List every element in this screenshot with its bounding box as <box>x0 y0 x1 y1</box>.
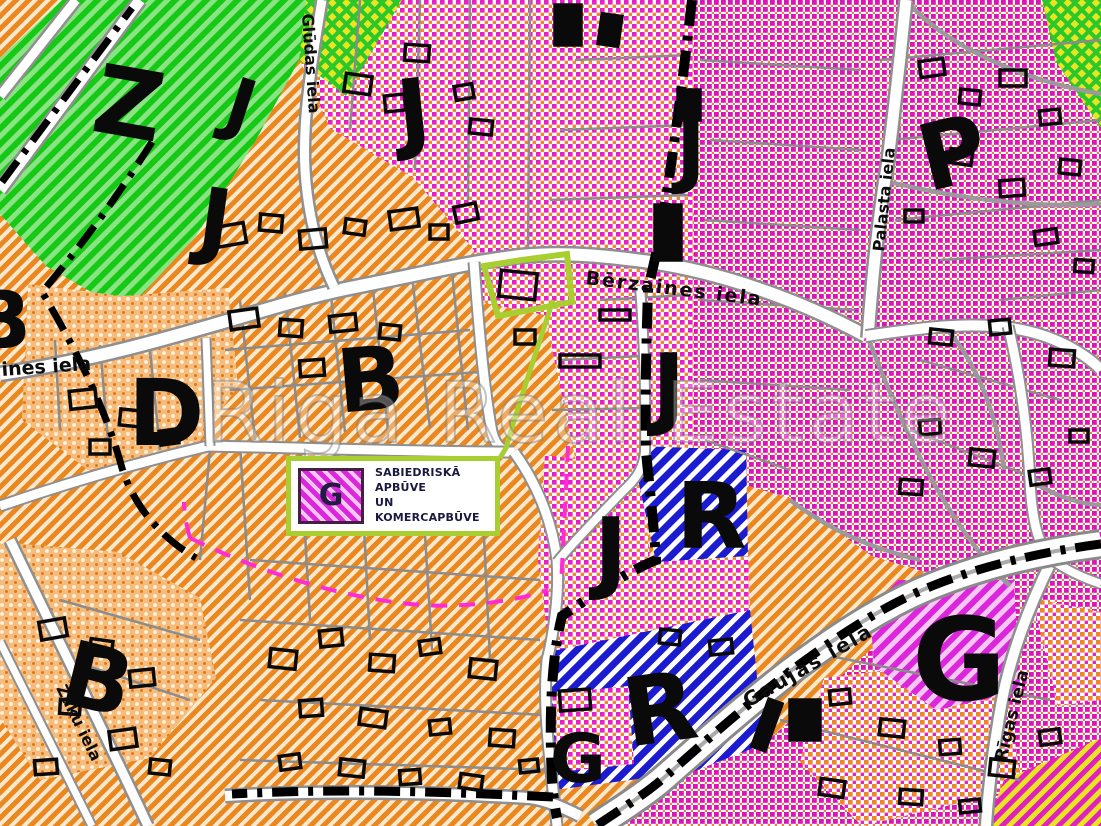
zone-letter-b-edge: B <box>0 274 31 367</box>
legend-zone-swatch: G <box>298 468 364 524</box>
zone-letter-j6: J <box>588 499 628 604</box>
legend-zone-symbol: G <box>319 481 344 511</box>
legend-text-line2: UN KOMERCAPBŪVE <box>375 496 488 526</box>
zone-letter-r1: R <box>676 463 747 570</box>
legend-text: SABIEDRISKĀ APBŪVE UN KOMERCAPBŪVE <box>375 466 488 525</box>
zone-letter-r2: R <box>616 651 704 770</box>
zone-letter-g-small: G <box>550 720 606 799</box>
zoning-map-canvas[interactable]: Z J J J J P B D B J J R R G B G Bērzaine… <box>0 0 1101 826</box>
legend-text-line1: SABIEDRISKĀ APBŪVE <box>375 466 488 496</box>
zone-letter-j4: J <box>671 104 706 197</box>
watermark-text: Riga Real Estate <box>205 364 956 462</box>
zoning-map[interactable]: Z J J J J P B D B J J R R G B G Bērzaine… <box>0 0 1101 826</box>
legend-box: G SABIEDRISKĀ APBŪVE UN KOMERCAPBŪVE <box>286 456 500 536</box>
zone-letter-d: D <box>128 360 204 467</box>
zone-letter-g-circle: G <box>912 594 1006 728</box>
